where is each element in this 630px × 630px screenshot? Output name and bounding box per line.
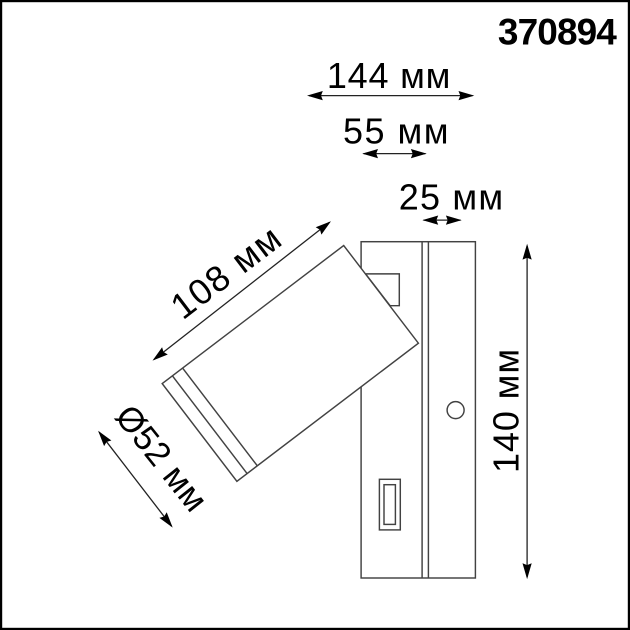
svg-text:144 мм: 144 мм xyxy=(327,55,451,96)
svg-text:140 мм: 140 мм xyxy=(486,348,527,473)
svg-text:370894: 370894 xyxy=(498,12,617,53)
svg-text:25 мм: 25 мм xyxy=(399,176,505,217)
svg-text:55 мм: 55 мм xyxy=(343,110,450,151)
